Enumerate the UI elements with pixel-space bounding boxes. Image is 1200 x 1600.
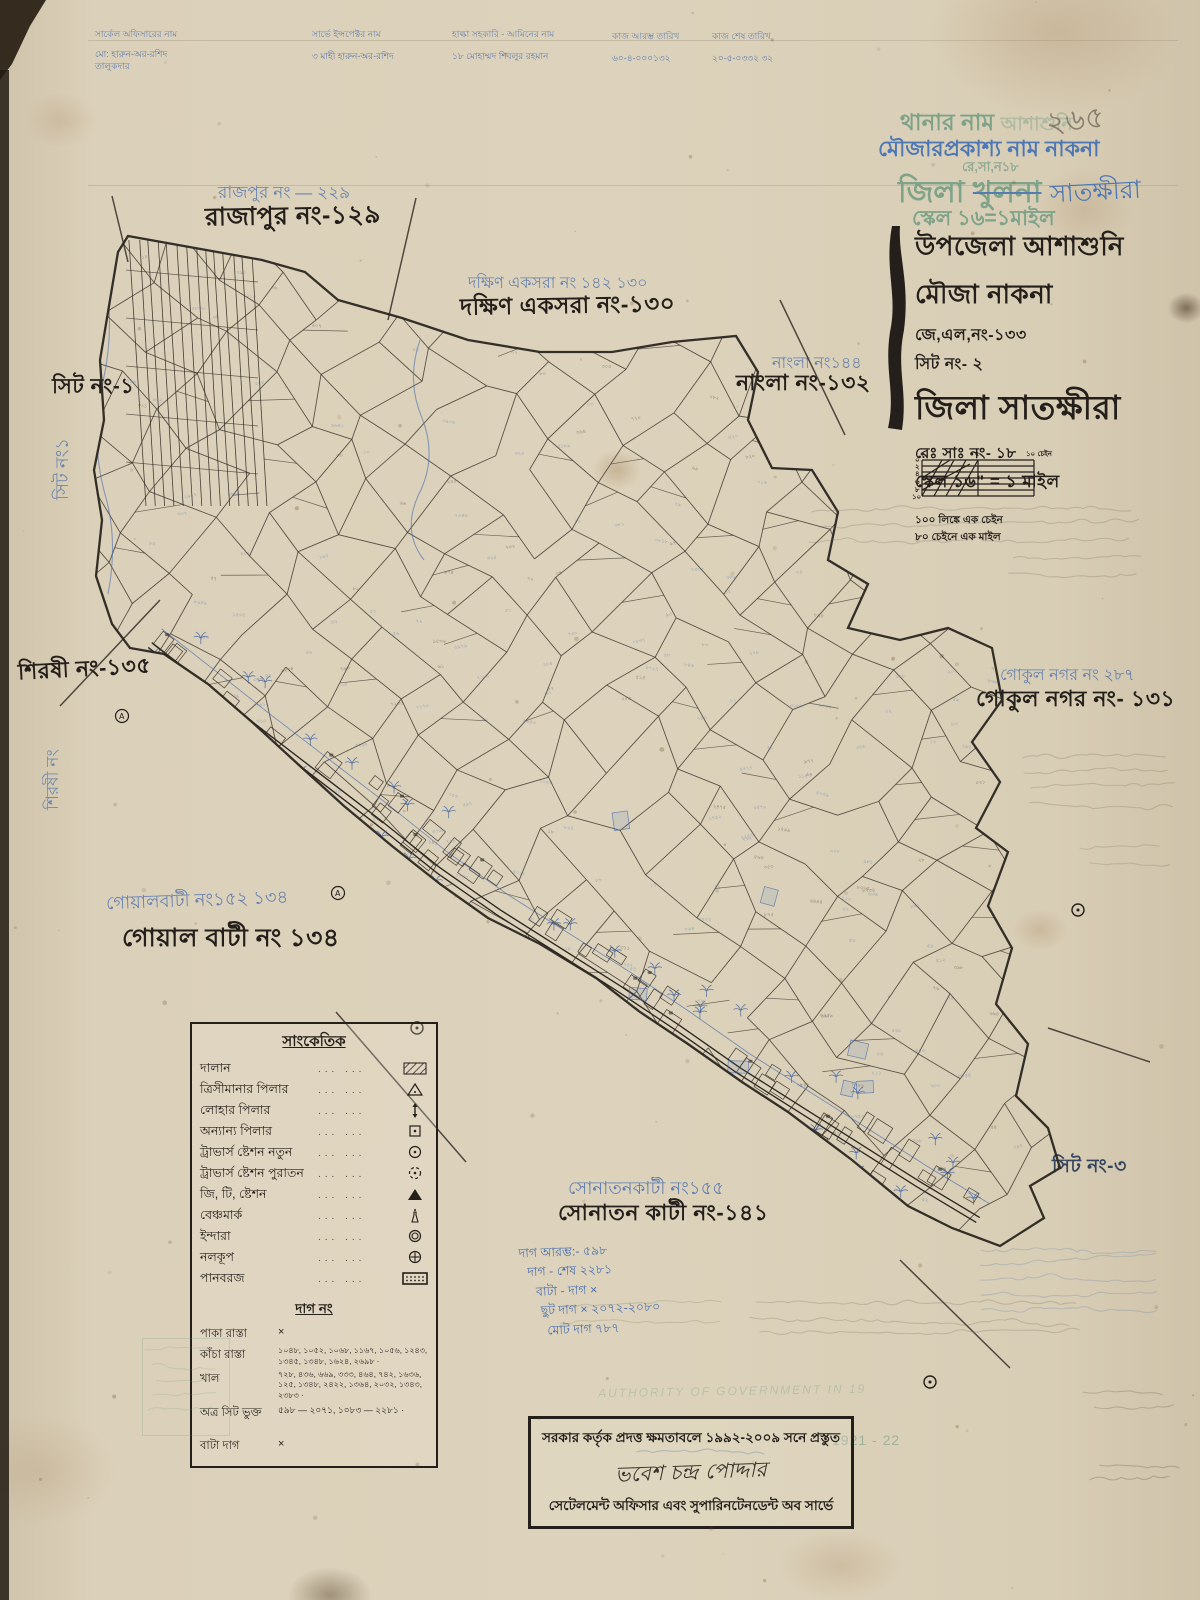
scan-noise-overlay: [0, 0, 1200, 1600]
scanned-cadastral-map-sheet: সার্কেল অফিসারের নাম মো: হারুন-অর-রশিদ ত…: [0, 0, 1200, 1600]
